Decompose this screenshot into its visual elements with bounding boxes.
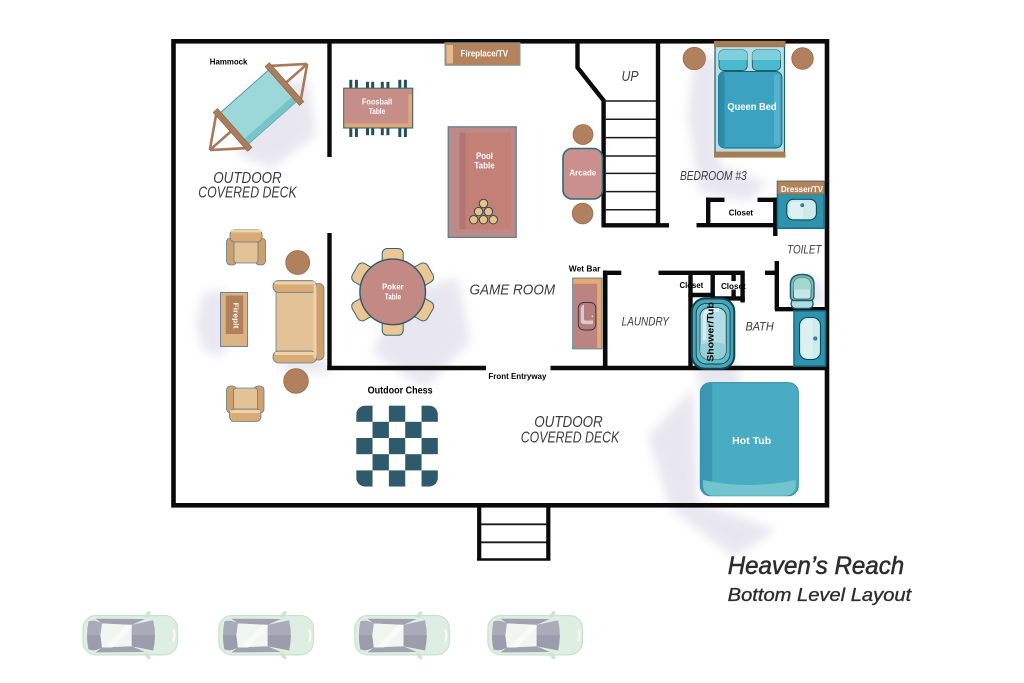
svg-text:Queen Bed: Queen Bed (727, 102, 776, 113)
svg-text:Closet: Closet (721, 281, 746, 291)
svg-text:UP: UP (622, 69, 639, 85)
svg-text:LAUNDRY: LAUNDRY (622, 314, 670, 328)
svg-text:Table: Table (385, 293, 402, 302)
svg-text:Shower/Tub: Shower/Tub (706, 302, 717, 362)
svg-text:Fireplace/TV: Fireplace/TV (461, 49, 509, 59)
svg-text:Dresser/TV: Dresser/TV (781, 184, 824, 194)
svg-text:Outdoor Chess: Outdoor Chess (368, 385, 434, 396)
svg-text:Hammock: Hammock (210, 56, 248, 66)
svg-text:BATH: BATH (745, 320, 773, 334)
svg-text:COVERED DECK: COVERED DECK (198, 184, 298, 201)
svg-text:Poker: Poker (382, 283, 404, 292)
svg-text:Pool: Pool (476, 151, 493, 161)
svg-text:Firepit: Firepit (232, 303, 239, 330)
svg-text:OUTDOOR: OUTDOOR (534, 414, 603, 431)
svg-text:Closet: Closet (729, 207, 754, 217)
svg-text:Bottom Level Layout: Bottom Level Layout (728, 584, 912, 605)
svg-text:Heaven’s Reach: Heaven’s Reach (728, 552, 905, 580)
svg-text:Closet: Closet (680, 280, 704, 290)
svg-text:Table: Table (369, 107, 386, 116)
svg-text:Foosball: Foosball (362, 98, 392, 107)
svg-text:GAME ROOM: GAME ROOM (469, 283, 556, 299)
svg-text:Hot Tub: Hot Tub (732, 436, 771, 447)
svg-text:Table: Table (474, 161, 494, 171)
svg-text:COVERED DECK: COVERED DECK (521, 430, 621, 447)
svg-text:Wet Bar: Wet Bar (569, 263, 601, 273)
svg-text:Arcade: Arcade (569, 169, 596, 178)
svg-text:TOILET: TOILET (787, 242, 823, 256)
svg-text:Front Entryway: Front Entryway (488, 372, 547, 381)
svg-text:BEDROOM #3: BEDROOM #3 (680, 168, 747, 183)
